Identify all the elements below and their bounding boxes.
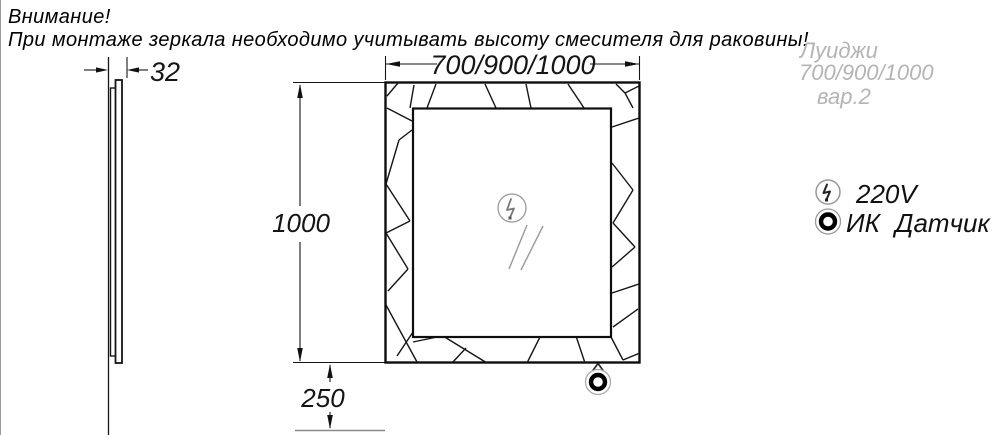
- legend-ir-sensor-icon: [816, 209, 841, 234]
- warning-title: Внимание!: [8, 6, 111, 28]
- sensor-label: ИК Датчик: [846, 209, 990, 238]
- power-label: 220V: [856, 180, 917, 209]
- arrowhead: [127, 67, 139, 72]
- dim-bottom-offset-label: 250: [301, 384, 344, 413]
- arrowhead: [96, 67, 108, 72]
- warning-text: При монтаже зеркала необходимо учитывать…: [8, 29, 809, 51]
- model-variant: вар.2: [817, 85, 871, 109]
- arrowhead: [625, 61, 639, 67]
- ir-sensor-icon: [586, 364, 611, 395]
- dim-width-label: 700/900/1000: [430, 51, 595, 81]
- dim-thickness-label: 32: [150, 58, 180, 88]
- arrowhead: [327, 364, 333, 378]
- mirror-surface: [413, 109, 611, 338]
- profile-mirror-glass: [116, 80, 123, 363]
- arrowhead: [386, 61, 400, 67]
- legend-lightning-icon: [816, 180, 840, 204]
- arrowhead: [327, 415, 333, 429]
- dim-height-label: 1000: [272, 209, 330, 238]
- arrowhead: [297, 348, 303, 362]
- side-view: [84, 57, 148, 435]
- model-sizes: 700/900/1000: [799, 61, 934, 85]
- dim-thickness: [84, 57, 148, 78]
- technical-drawing-page: Внимание! При монтаже зеркала необходимо…: [0, 0, 1000, 435]
- front-view: [386, 83, 641, 395]
- arrowhead: [297, 84, 303, 98]
